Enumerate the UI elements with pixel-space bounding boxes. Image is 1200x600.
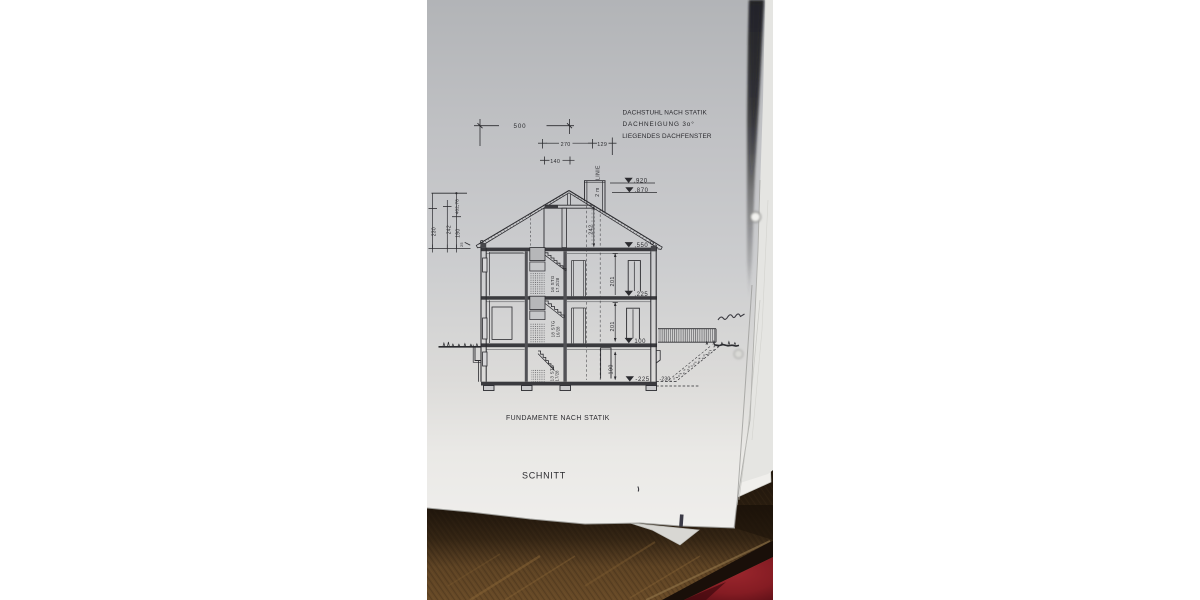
svg-text:2 m: 2 m: [595, 187, 601, 197]
svg-text:,550: ,550: [634, 243, 648, 249]
svg-text:190: 190: [609, 364, 615, 374]
svg-text:16/28: 16/28: [556, 326, 561, 338]
svg-text:-230,: -230,: [660, 377, 672, 383]
svg-text:.870: .870: [635, 188, 649, 194]
svg-text:,225: ,225: [634, 292, 648, 298]
svg-text:201: 201: [610, 276, 616, 286]
svg-text:25: 25: [459, 242, 464, 247]
svg-text:230: 230: [431, 227, 437, 236]
svg-text:LIEGENDES DACHFENSTER: LIEGENDES DACHFENSTER: [622, 133, 712, 140]
svg-text:DACHSTUHL NACH STATIK: DACHSTUHL NACH STATIK: [623, 110, 708, 117]
svg-text:LINIE: LINIE: [596, 165, 602, 180]
svg-text:100: 100: [634, 339, 646, 345]
svg-text:242: 242: [446, 225, 452, 234]
svg-text:129: 129: [597, 142, 607, 148]
svg-text:17,2/28: 17,2/28: [555, 277, 560, 292]
svg-text:270: 270: [561, 142, 571, 148]
svg-text:17/28: 17/28: [554, 370, 559, 382]
svg-text:.920: .920: [634, 178, 648, 184]
svg-text:140: 140: [550, 159, 560, 165]
svg-text:SCHNITT: SCHNITT: [522, 470, 566, 480]
svg-text:201: 201: [610, 321, 616, 331]
svg-text:DACHNEIGUNG 3o°: DACHNEIGUNG 3o°: [623, 120, 695, 128]
svg-text:FUNDAMENTE NACH STATIK: FUNDAMENTE NACH STATIK: [506, 415, 610, 422]
svg-text:500: 500: [514, 123, 527, 130]
svg-text:-225: -225: [635, 377, 649, 383]
svg-text:190: 190: [456, 229, 462, 238]
svg-text:242: 242: [588, 224, 594, 234]
svg-text:402,78: 402,78: [455, 199, 460, 214]
